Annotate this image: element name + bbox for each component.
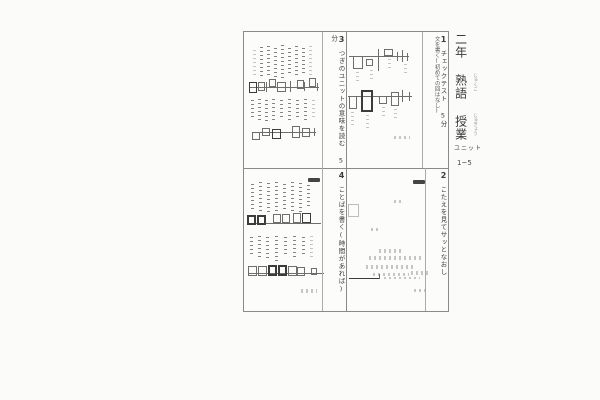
furigana-jukugo: じゅくご <box>472 73 477 91</box>
panel-2-header: 2こたえを見てサッとなおし <box>425 168 448 311</box>
panel-subtitle: 文を書く(初めての回はなし) <box>433 36 439 168</box>
panel-4: 4ことばを書く(時間があれば) <box>244 168 346 311</box>
panel-title: つぎのユニットの意味を読む 5分 <box>330 35 345 166</box>
panel-title: こたえを見てサッとなおし <box>439 186 447 276</box>
course-title: 二年 熟語 授業 <box>454 33 467 151</box>
panel-number: 1 <box>439 35 448 45</box>
course-title-block: 二年 熟語 授業 じゅくご じゅぎょう ユニット 1~5 <box>452 33 498 183</box>
panel-number: 2 <box>439 171 448 181</box>
unit-range: 1~5 <box>457 159 472 167</box>
worksheet-grid: 3つぎのユニットの意味を読む 5分 1チェックテスト 5分 文を書く(初めての回… <box>243 31 449 312</box>
scanned-worksheet-page: 3つぎのユニットの意味を読む 5分 1チェックテスト 5分 文を書く(初めての回… <box>0 0 600 400</box>
panel-3-heading: 3つぎのユニットの意味を読む 5分 <box>330 35 345 168</box>
unit-label: ユニット <box>454 143 482 152</box>
panel-2: 2こたえを見てサッとなおし <box>346 168 448 311</box>
panel-1-header: 1チェックテスト 5分 文を書く(初めての回はなし) <box>422 32 448 168</box>
panel-title: チェックテスト 5分 <box>439 50 447 128</box>
panel-number: 3 <box>337 35 346 45</box>
panel-3: 3つぎのユニットの意味を読む 5分 <box>244 32 346 168</box>
panel-4-header: 4ことばを書く(時間があれば) <box>322 168 346 311</box>
panel-title: ことばを書く(時間があれば) <box>337 186 345 294</box>
panel-1: 1チェックテスト 5分 文を書く(初めての回はなし) <box>346 32 448 168</box>
furigana-jugyou: じゅぎょう <box>472 113 477 136</box>
panel-3-header: 3つぎのユニットの意味を読む 5分 <box>322 32 346 168</box>
panel-number: 4 <box>337 171 346 181</box>
panel-2-heading: 2こたえを見てサッとなおし <box>439 171 447 311</box>
panel-4-heading: 4ことばを書く(時間があれば) <box>337 171 345 311</box>
